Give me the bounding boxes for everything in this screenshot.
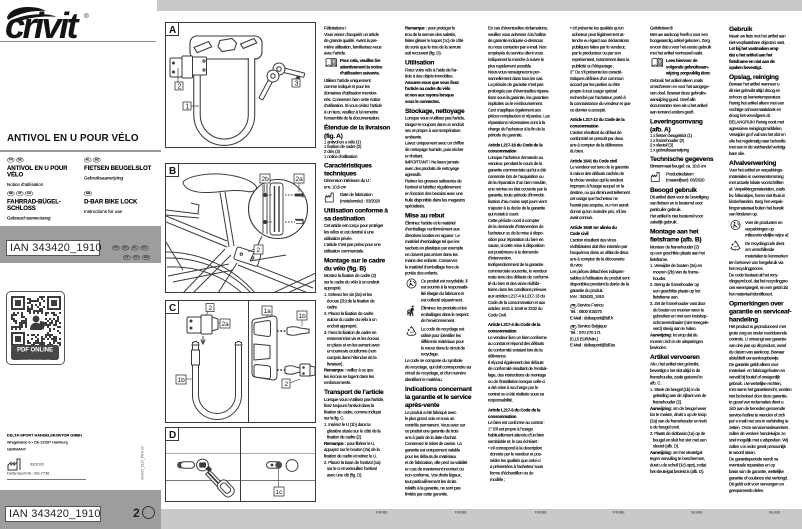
svg-text:2a: 2a [222,321,230,328]
svg-text:1b: 1b [299,313,307,320]
svg-text:D: D [169,430,176,441]
svg-text:C: C [169,303,176,314]
svg-text:®: ® [84,12,89,20]
svg-text:2: 2 [285,381,289,388]
svg-text:A: A [169,25,176,36]
svg-text:1b: 1b [178,377,186,384]
svg-text:crivit: crivit [5,5,81,42]
svg-text:2: 2 [257,247,261,254]
svg-text:2: 2 [178,84,182,91]
svg-text:1c: 1c [276,489,284,496]
svg-text:1: 1 [186,104,190,111]
svg-text:2b: 2b [262,176,270,183]
svg-text:3: 3 [295,81,299,88]
svg-text:1a: 1a [264,308,272,315]
svg-text:2a: 2a [296,176,304,183]
svg-text:B: B [169,166,176,177]
svg-text:2: 2 [209,305,213,312]
